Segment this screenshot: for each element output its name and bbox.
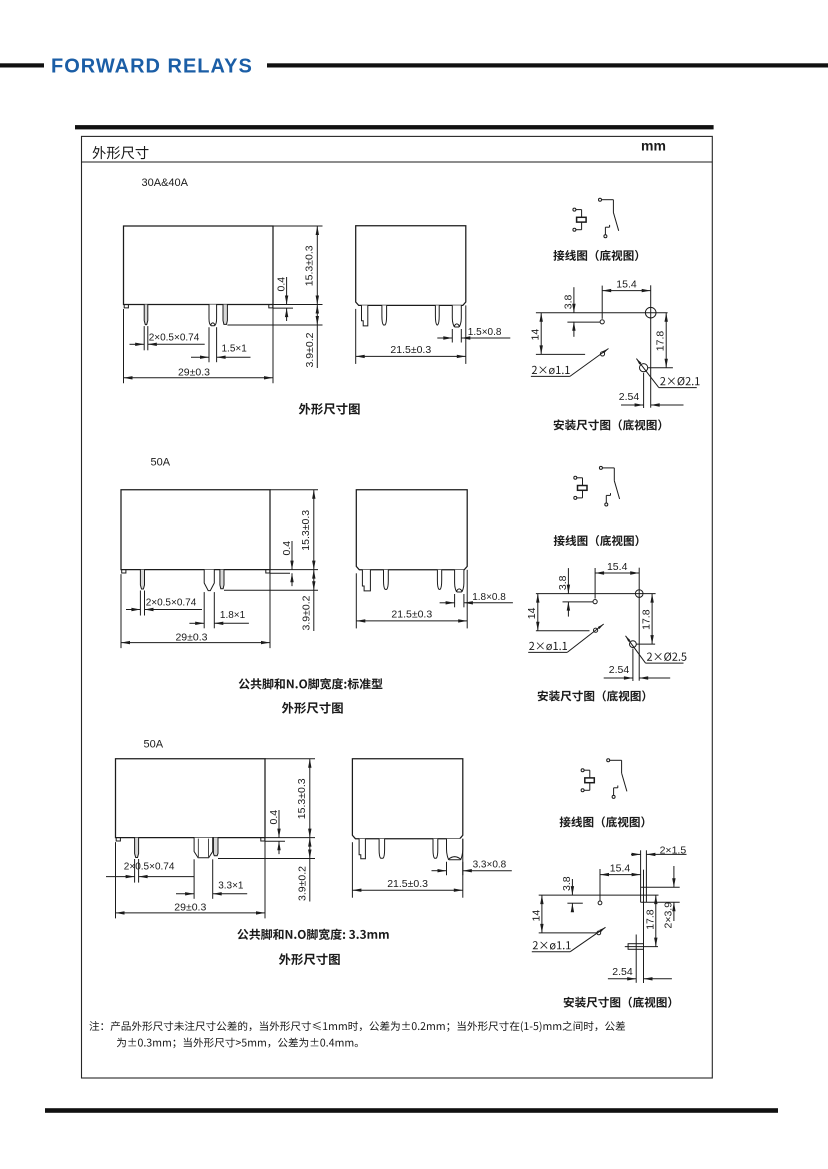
svg-text:15.4: 15.4	[607, 561, 628, 573]
svg-text:1.8×1: 1.8×1	[220, 610, 246, 621]
svg-text:3.8: 3.8	[561, 876, 573, 891]
svg-text:30A&40A: 30A&40A	[142, 177, 189, 189]
svg-text:21.5±0.3: 21.5±0.3	[391, 609, 432, 621]
svg-text:3.9±0.2: 3.9±0.2	[301, 595, 313, 630]
svg-text:17.8: 17.8	[645, 909, 657, 930]
svg-text:17.8: 17.8	[655, 331, 667, 352]
svg-text:2.54: 2.54	[619, 391, 640, 403]
svg-text:1.5×0.8: 1.5×0.8	[468, 327, 502, 338]
svg-text:1.8×0.8: 1.8×0.8	[472, 592, 506, 603]
svg-text:14: 14	[526, 607, 538, 619]
svg-text:15.4: 15.4	[616, 279, 637, 291]
svg-text:15.3±0.3: 15.3±0.3	[296, 778, 308, 819]
svg-text:FORWARD RELAYS: FORWARD RELAYS	[51, 56, 253, 78]
svg-text:14: 14	[530, 329, 542, 341]
svg-text:29±0.3: 29±0.3	[174, 902, 206, 914]
svg-text:15.4: 15.4	[610, 862, 631, 874]
svg-text:21.5±0.3: 21.5±0.3	[390, 344, 431, 356]
svg-text:3.3×1: 3.3×1	[218, 880, 244, 891]
svg-text:1.5×1: 1.5×1	[222, 344, 248, 355]
svg-text:2×3.9: 2×3.9	[663, 902, 675, 929]
svg-text:21.5±0.3: 21.5±0.3	[387, 878, 428, 890]
svg-text:0.4: 0.4	[281, 541, 293, 556]
svg-text:0.4: 0.4	[276, 277, 288, 292]
svg-text:3.9±0.2: 3.9±0.2	[297, 866, 309, 901]
svg-text:50A: 50A	[144, 739, 164, 751]
svg-text:3.3×0.8: 3.3×0.8	[473, 860, 507, 871]
svg-text:29±0.3: 29±0.3	[175, 631, 207, 643]
svg-text:3.8: 3.8	[563, 294, 575, 309]
svg-text:50A: 50A	[151, 457, 171, 469]
svg-text:2.54: 2.54	[609, 664, 630, 676]
svg-text:15.3±0.3: 15.3±0.3	[304, 245, 316, 286]
svg-text:14: 14	[531, 910, 543, 922]
svg-text:2×0.5×0.74: 2×0.5×0.74	[146, 598, 197, 609]
svg-text:3.8: 3.8	[557, 575, 569, 590]
svg-text:29±0.3: 29±0.3	[178, 367, 210, 379]
svg-text:2×0.5×0.74: 2×0.5×0.74	[124, 862, 175, 873]
svg-text:mm: mm	[641, 138, 666, 154]
svg-text:2.54: 2.54	[612, 966, 633, 978]
svg-text:17.8: 17.8	[640, 609, 652, 630]
svg-text:2×0.5×0.74: 2×0.5×0.74	[149, 333, 200, 344]
svg-text:0.4: 0.4	[268, 810, 280, 825]
svg-text:3.9±0.2: 3.9±0.2	[304, 332, 316, 367]
svg-text:15.3±0.3: 15.3±0.3	[300, 510, 312, 551]
